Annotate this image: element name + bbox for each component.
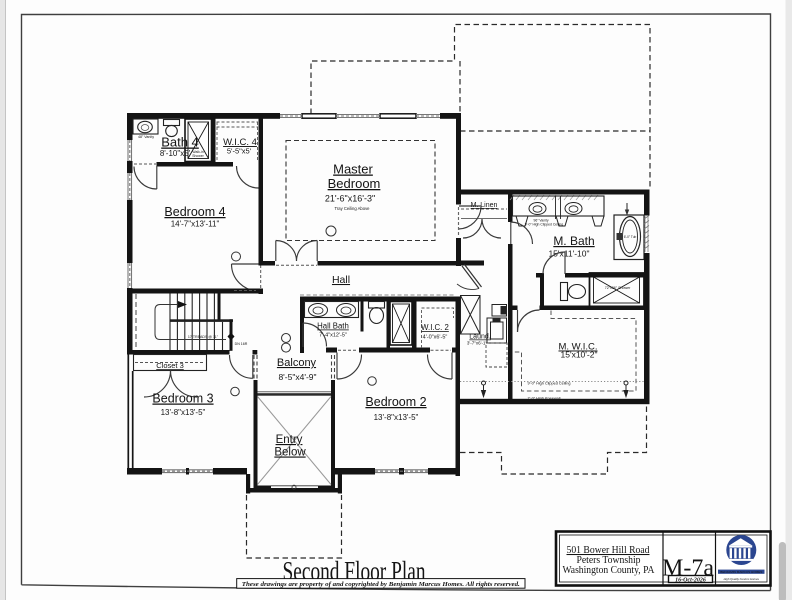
svg-text:Balcony: Balcony [277, 357, 317, 369]
svg-text:Bedroom 4: Bedroom 4 [164, 205, 225, 219]
svg-text:13'-8"x13'-5": 13'-8"x13'-5" [161, 408, 206, 417]
svg-text:Hall Bath: Hall Bath [317, 322, 349, 331]
svg-text:Washington County, PA: Washington County, PA [563, 565, 655, 576]
svg-text:Below: Below [274, 447, 306, 459]
svg-text:DN 16R: DN 16R [235, 342, 248, 346]
svg-text:3'-7"x6'-1": 3'-7"x6'-1" [467, 341, 488, 346]
svg-text:Bedroom 3: Bedroom 3 [152, 392, 213, 406]
svg-text:Hall: Hall [332, 274, 350, 286]
svg-text:Tray Ceiling Above: Tray Ceiling Above [335, 206, 371, 211]
svg-text:8'-10"x5': 8'-10"x5' [160, 149, 191, 158]
svg-text:16-Oct-2026: 16-Oct-2026 [675, 578, 706, 584]
svg-text:9'-0" High Clipped Ceiling: 9'-0" High Clipped Ceiling [525, 223, 564, 227]
svg-text:Closet 3: Closet 3 [156, 361, 184, 370]
svg-text:These drawings are property of: These drawings are property of and copyr… [242, 582, 521, 588]
svg-text:5'-5"x5': 5'-5"x5' [227, 147, 252, 156]
svg-text:Bedroom 2: Bedroom 2 [365, 395, 426, 409]
svg-text:8'-5"x4'-9": 8'-5"x4'-9" [278, 372, 316, 382]
svg-text:Master: Master [333, 162, 373, 177]
svg-text:M. Bath: M. Bath [553, 234, 594, 248]
svg-text:4'-0"x6'-5": 4'-0"x6'-5" [423, 335, 448, 341]
svg-text:Bath 4: Bath 4 [161, 135, 199, 150]
svg-text:Bedroom: Bedroom [328, 176, 381, 191]
svg-text:W.I.C. 2: W.I.C. 2 [421, 323, 449, 332]
svg-text:15'x10'-2": 15'x10'-2" [561, 350, 598, 360]
svg-text:Laund.: Laund. [469, 334, 490, 341]
svg-text:14'-7"x13'-11": 14'-7"x13'-11" [171, 220, 220, 229]
svg-text:7'-4"x12'-5": 7'-4"x12'-5" [319, 333, 347, 339]
svg-text:15'x11'-10": 15'x11'-10" [548, 249, 589, 259]
svg-text:M. Linen: M. Linen [471, 202, 498, 209]
svg-text:48" Vanity: 48" Vanity [138, 135, 154, 139]
svg-text:21'-6"x16'-3": 21'-6"x16'-3" [325, 194, 375, 204]
svg-text:Entry: Entry [276, 434, 303, 446]
svg-text:72"x36" Shower: 72"x36" Shower [605, 286, 631, 290]
svg-text:13'-8"x13'-5": 13'-8"x13'-5" [374, 413, 419, 422]
svg-text:BENJAMIN MARCUS HOMES: BENJAMIN MARCUS HOMES [720, 570, 762, 574]
svg-text:9'-0" High Clipped Ceiling: 9'-0" High Clipped Ceiling [527, 382, 570, 386]
svg-text:High Quality Custom Homes: High Quality Custom Homes [724, 577, 760, 581]
svg-text:Shower: Shower [192, 154, 204, 158]
svg-text:17 TREADS @ 11": 17 TREADS @ 11" [188, 335, 219, 339]
svg-text:6'-0" Tub: 6'-0" Tub [624, 235, 637, 239]
